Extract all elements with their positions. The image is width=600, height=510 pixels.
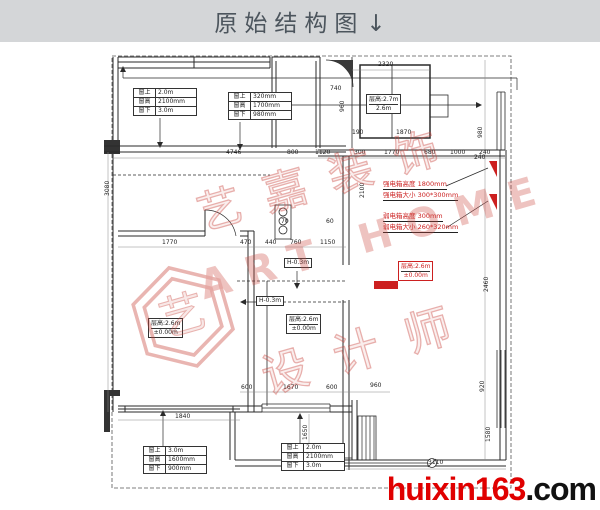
logo-tld: .com [525,471,596,507]
screenshot-page: 原始结构图↓ [0,0,600,510]
window-spec-label: 窗上 [144,447,166,455]
dimension-label: 1840 [175,414,190,420]
ceiling-height-box: 层高:2.6m±0.00m [148,318,183,338]
power-box-note: 弱电箱高度 300mm [383,213,443,222]
window-spec-label: 窗高 [229,102,251,110]
window-spec-label: 窗下 [229,111,251,119]
window-spec-label: 窗高 [134,98,156,106]
floor-level-value: 2.6m [369,104,398,112]
level-difference-note: H-0.3m [256,296,284,306]
huixin163-logo: huixin163.com [387,472,596,506]
window-spec-row: 窗高2100mm [134,97,196,106]
dimension-label: 800 [287,150,298,156]
window-spec-row: 窗高2100mm [282,452,344,461]
red-annotation-bar [374,281,398,289]
floor-level-value: ±0.00m [151,328,180,336]
window-spec-row: 窗上2.0m [134,89,196,97]
window-spec-value: 3.0m [304,462,344,470]
window-spec-row: 窗下3.0m [134,106,196,115]
dimension-label: 920 [480,381,486,392]
window-spec-label: 窗下 [282,462,304,470]
dimension-label: 960 [340,101,346,112]
window-spec-label: 窗高 [282,453,304,461]
dimension-label: 2320 [378,62,393,68]
dimension-label: 600 [241,385,252,391]
ceiling-height-value: 层高:2.6m [151,320,180,327]
strong-power-box-marker [489,161,497,177]
dimension-label: 2100 [360,183,366,198]
window-spec-label: 窗下 [144,465,166,473]
dimension-label: 70 [281,219,289,225]
ceiling-height-box: 层高:2.6m±0.00m [286,314,321,334]
floor-plan: 2320740960190187021009802402460920158047… [0,42,600,510]
window-spec-row: 窗高1600mm [144,455,206,464]
dimension-label: 680 [424,150,435,156]
dimension-label: 1670 [283,385,298,391]
dimension-label: 1870 [396,130,411,136]
window-spec-row: 窗上320mm [229,93,291,101]
down-arrow-icon: ↓ [366,11,385,37]
window-spec-value: 2100mm [304,453,344,461]
weak-power-box-marker [489,194,497,210]
power-box-note: 弱电箱大小 260*320mm [383,224,458,233]
dimension-label: 1770 [162,240,177,246]
window-spec-label: 窗高 [144,456,166,464]
dimension-label: 190 [352,130,363,136]
dimension-label: 980 [478,127,484,138]
dimension-label: 240 [479,150,490,156]
dimension-label: 1150 [320,240,335,246]
window-spec-value: 3.0m [156,107,196,115]
dimension-label: 2460 [484,277,490,292]
window-spec-row: 窗高1700mm [229,101,291,110]
level-difference-note: H-0.3m [284,258,312,268]
window-spec-value: 980mm [251,111,291,119]
window-spec-value: 1600mm [166,456,206,464]
dimension-label: 3080 [105,181,111,196]
window-spec-table: 窗上2.0m窗高2100mm窗下3.0m [133,88,197,116]
window-spec-row: 窗下3.0m [282,461,344,470]
dimension-label: 300 [354,150,365,156]
window-spec-row: 窗下980mm [229,110,291,119]
dimension-label: 960 [370,383,381,389]
window-spec-row: 窗下900mm [144,464,206,473]
window-spec-value: 2.0m [304,444,344,452]
logo-name: huixin163 [387,471,526,507]
ceiling-height-value: 层高:2.6m [289,316,318,323]
window-spec-value: 3.0m [166,447,206,455]
window-spec-label: 窗下 [134,107,156,115]
dimension-label: 600 [326,385,337,391]
ceiling-height-value: 层高:2.6m [401,263,430,270]
window-spec-value: 900mm [166,465,206,473]
dimension-label: 4746 [226,150,241,156]
dimension-label: 1000 [450,150,465,156]
dimension-label: 60 [326,219,334,225]
dimension-label: 3110 [428,460,443,466]
window-spec-label: 窗上 [134,89,156,97]
window-spec-label: 窗上 [282,444,304,452]
dimension-label: 1770 [384,150,399,156]
ceiling-height-box: 层高:2.6m±0.00m [398,261,433,281]
ceiling-height-value: 层高:2.7m [369,96,398,103]
dimension-label: 1580 [486,427,492,442]
window-spec-value: 2100mm [156,98,196,106]
floor-level-value: ±0.00m [289,324,318,332]
dimension-label: 1650 [303,425,309,440]
dimension-label: 740 [330,86,341,92]
window-spec-table: 窗上2.0m窗高2100mm窗下3.0m [281,443,345,471]
power-box-note: 强电箱高度 1800mm [383,181,447,190]
dimension-label: 470 [240,240,251,246]
window-spec-value: 320mm [251,93,291,101]
window-spec-value: 1700mm [251,102,291,110]
dimension-label: 1120 [315,150,330,156]
page-title: 原始结构图↓ [214,4,385,38]
page-header: 原始结构图↓ [0,0,600,42]
ceiling-height-box: 层高:2.7m2.6m [366,94,401,114]
window-spec-table: 窗上3.0m窗高1600mm窗下900mm [143,446,207,474]
dimension-label: 440 [265,240,276,246]
plan-linework [0,42,600,510]
floor-level-value: ±0.00m [401,271,430,279]
window-spec-value: 2.0m [156,89,196,97]
window-spec-table: 窗上320mm窗高1700mm窗下980mm [228,92,292,120]
window-spec-label: 窗上 [229,93,251,101]
power-box-note: 强电箱大小 300*300mm [383,192,458,201]
window-spec-row: 窗上3.0m [144,447,206,455]
dimension-label: 760 [290,240,301,246]
window-spec-row: 窗上2.0m [282,444,344,452]
